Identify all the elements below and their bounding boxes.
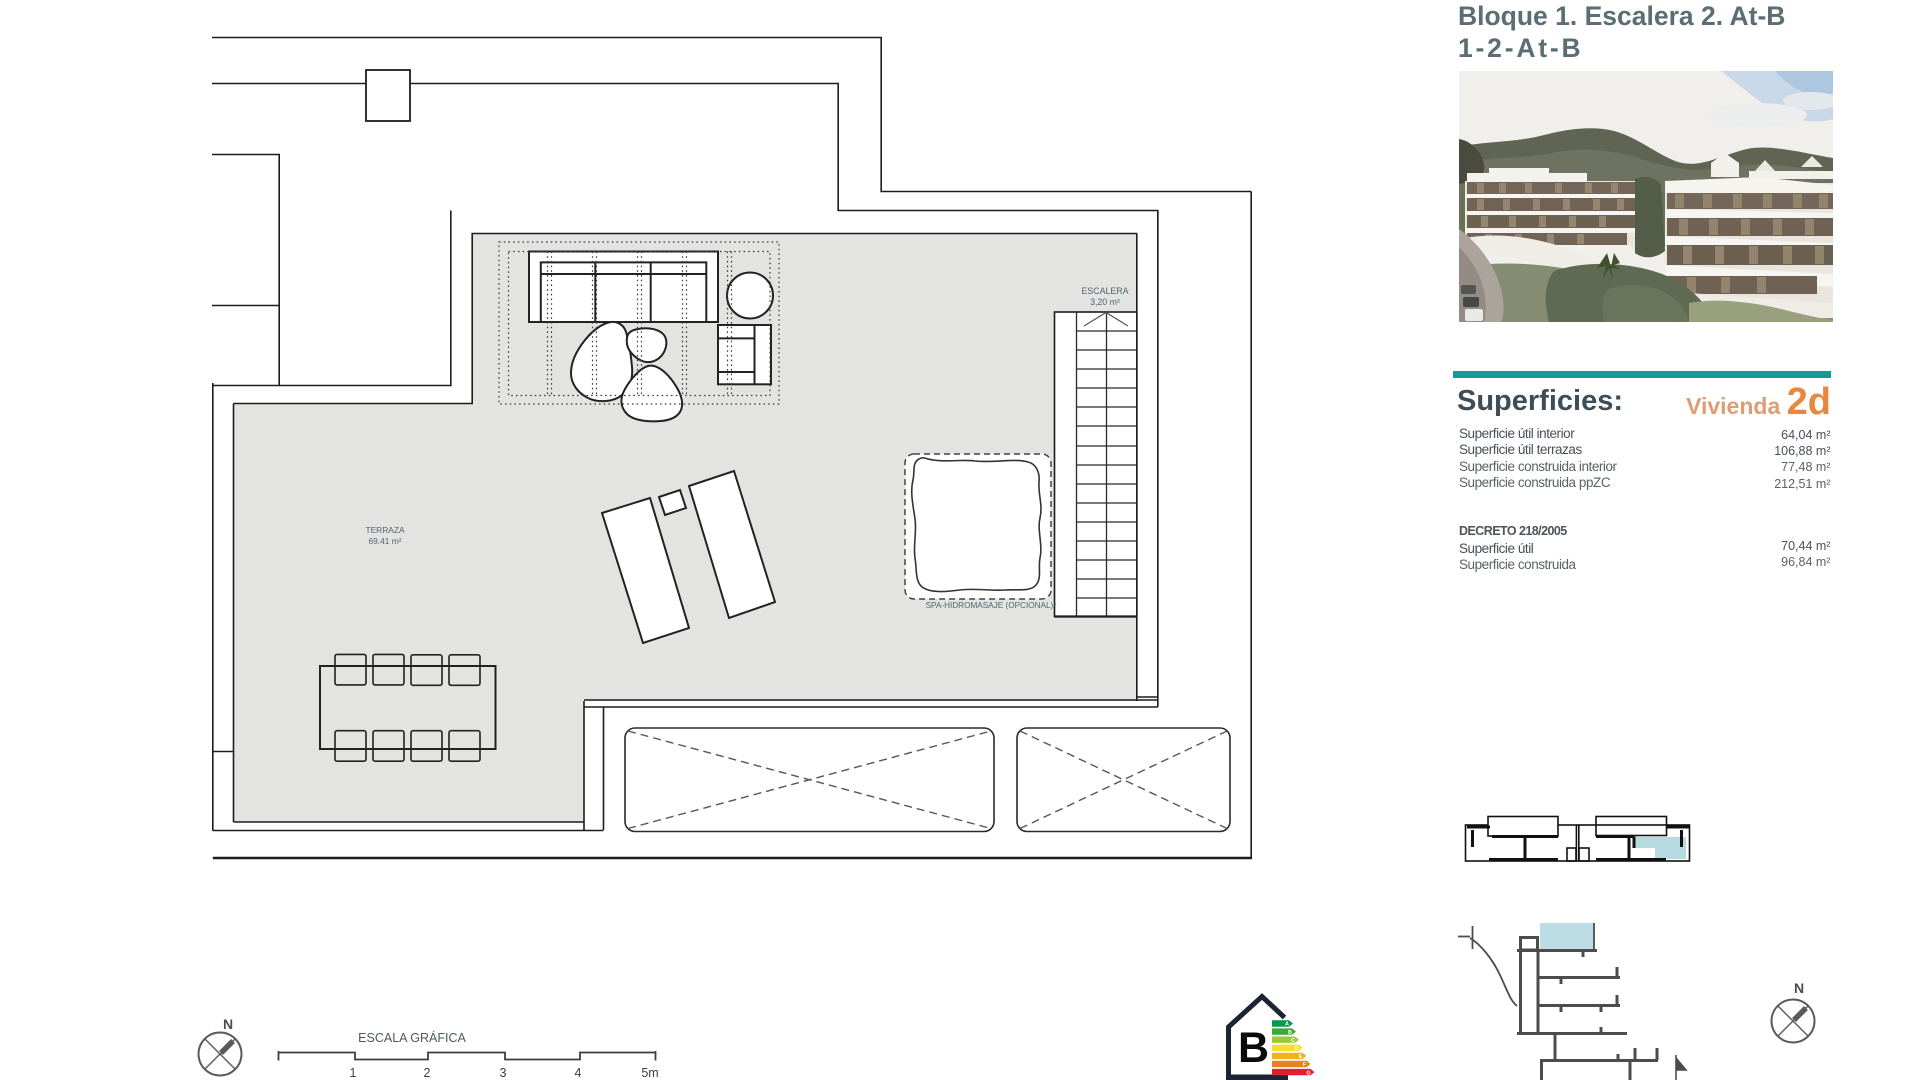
svg-text:5m: 5m	[641, 1066, 658, 1080]
svg-text:SPA-HIDROMASAJE (OPCIONAL)*: SPA-HIDROMASAJE (OPCIONAL)*	[926, 601, 1058, 610]
svg-text:1: 1	[350, 1066, 357, 1080]
svg-text:C: C	[1291, 1038, 1295, 1044]
svg-text:N: N	[1794, 980, 1804, 996]
svg-text:ESCALERA: ESCALERA	[1082, 286, 1129, 296]
svg-text:3,20 m²: 3,20 m²	[1090, 297, 1120, 307]
svg-text:D: D	[1295, 1046, 1299, 1052]
svg-text:3: 3	[500, 1066, 507, 1080]
svg-text:4: 4	[575, 1066, 582, 1080]
svg-text:B: B	[1288, 1030, 1292, 1036]
svg-text:B: B	[1238, 1024, 1269, 1072]
svg-text:69.41 m²: 69.41 m²	[368, 536, 401, 546]
svg-text:A: A	[1285, 1022, 1289, 1028]
svg-text:N: N	[223, 1016, 233, 1032]
svg-text:TERRAZA: TERRAZA	[365, 525, 405, 535]
svg-text:E: E	[1299, 1054, 1303, 1060]
svg-text:2: 2	[424, 1066, 431, 1080]
svg-text:ESCALA GRÁFICA: ESCALA GRÁFICA	[358, 1030, 466, 1045]
svg-text:G: G	[1306, 1070, 1310, 1076]
